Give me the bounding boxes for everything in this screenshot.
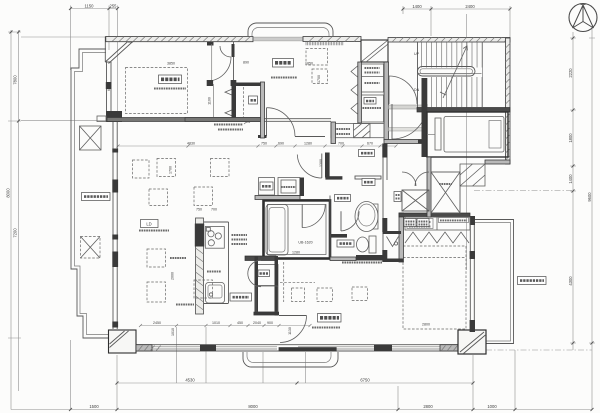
svg-text:4300: 4300 bbox=[568, 276, 573, 286]
svg-text:UB-1620: UB-1620 bbox=[298, 241, 312, 245]
svg-text:1100: 1100 bbox=[208, 97, 212, 105]
svg-text:8000: 8000 bbox=[248, 404, 258, 409]
svg-text:2000: 2000 bbox=[171, 272, 175, 280]
svg-text:1000: 1000 bbox=[487, 404, 497, 409]
svg-text:4530: 4530 bbox=[185, 378, 195, 383]
svg-text:1700: 1700 bbox=[317, 75, 321, 83]
svg-text:2220: 2220 bbox=[568, 68, 573, 78]
svg-text:7800: 7800 bbox=[13, 75, 18, 85]
svg-text:DN: DN bbox=[414, 88, 420, 92]
svg-text:1400: 1400 bbox=[412, 4, 422, 9]
svg-text:1280: 1280 bbox=[292, 251, 300, 255]
svg-text:255: 255 bbox=[110, 3, 118, 8]
svg-text:4830: 4830 bbox=[187, 142, 195, 146]
svg-text:750: 750 bbox=[261, 142, 267, 146]
svg-text:1150: 1150 bbox=[84, 3, 94, 8]
svg-text:1130: 1130 bbox=[288, 327, 292, 335]
svg-text:LD: LD bbox=[146, 222, 151, 227]
svg-text:750: 750 bbox=[196, 208, 202, 212]
svg-text:890: 890 bbox=[243, 61, 249, 65]
svg-text:700: 700 bbox=[211, 208, 217, 212]
svg-text:6750: 6750 bbox=[360, 378, 370, 383]
svg-text:3850: 3850 bbox=[167, 62, 175, 66]
svg-text:1400: 1400 bbox=[568, 174, 573, 184]
svg-text:1700: 1700 bbox=[169, 166, 173, 174]
svg-text:450: 450 bbox=[237, 321, 243, 325]
svg-text:7200: 7200 bbox=[13, 228, 18, 238]
svg-text:700: 700 bbox=[338, 142, 344, 146]
svg-text:UP: UP bbox=[414, 52, 420, 56]
svg-text:2800: 2800 bbox=[423, 404, 433, 409]
svg-text:1500: 1500 bbox=[89, 404, 99, 409]
svg-text:690: 690 bbox=[278, 142, 284, 146]
svg-text:900: 900 bbox=[267, 321, 273, 325]
svg-text:2400: 2400 bbox=[465, 4, 475, 9]
svg-text:1800: 1800 bbox=[568, 133, 573, 143]
svg-text:1280: 1280 bbox=[304, 142, 312, 146]
svg-text:670: 670 bbox=[367, 142, 373, 146]
svg-text:1010: 1010 bbox=[212, 321, 220, 325]
svg-text:1010: 1010 bbox=[171, 328, 175, 336]
svg-text:2040: 2040 bbox=[253, 321, 261, 325]
svg-text:9600: 9600 bbox=[587, 192, 592, 202]
svg-text:2800: 2800 bbox=[422, 323, 430, 327]
svg-text:1300: 1300 bbox=[319, 159, 323, 167]
svg-text:8000: 8000 bbox=[6, 188, 11, 198]
svg-text:2450: 2450 bbox=[153, 321, 161, 325]
